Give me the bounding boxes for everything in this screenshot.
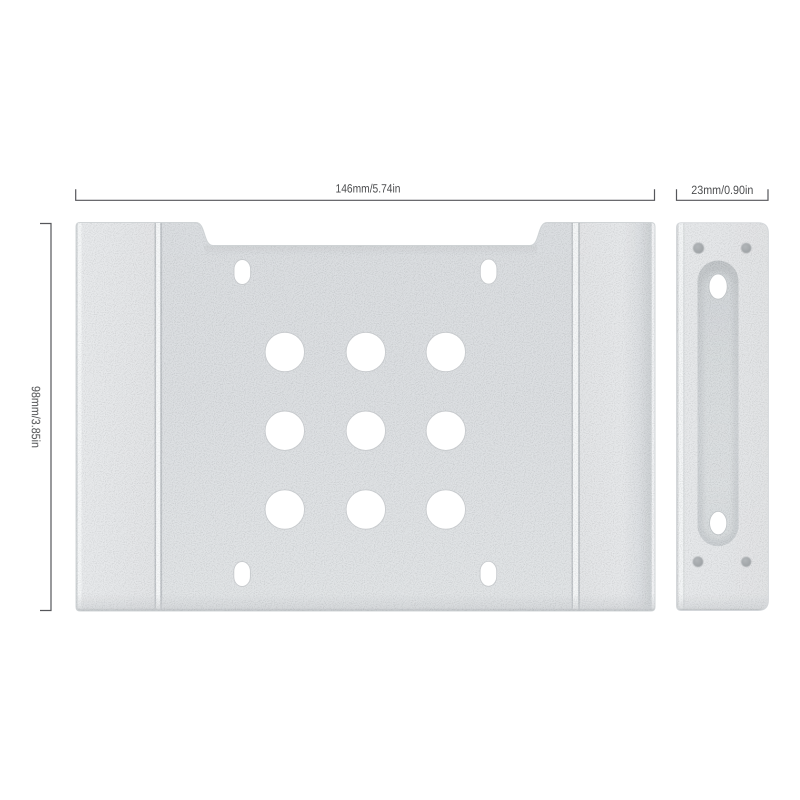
svg-text:98mm/3.85in: 98mm/3.85in [29,386,43,448]
svg-text:23mm/0.90in: 23mm/0.90in [691,183,753,197]
svg-text:146mm/5.74in: 146mm/5.74in [336,182,401,196]
